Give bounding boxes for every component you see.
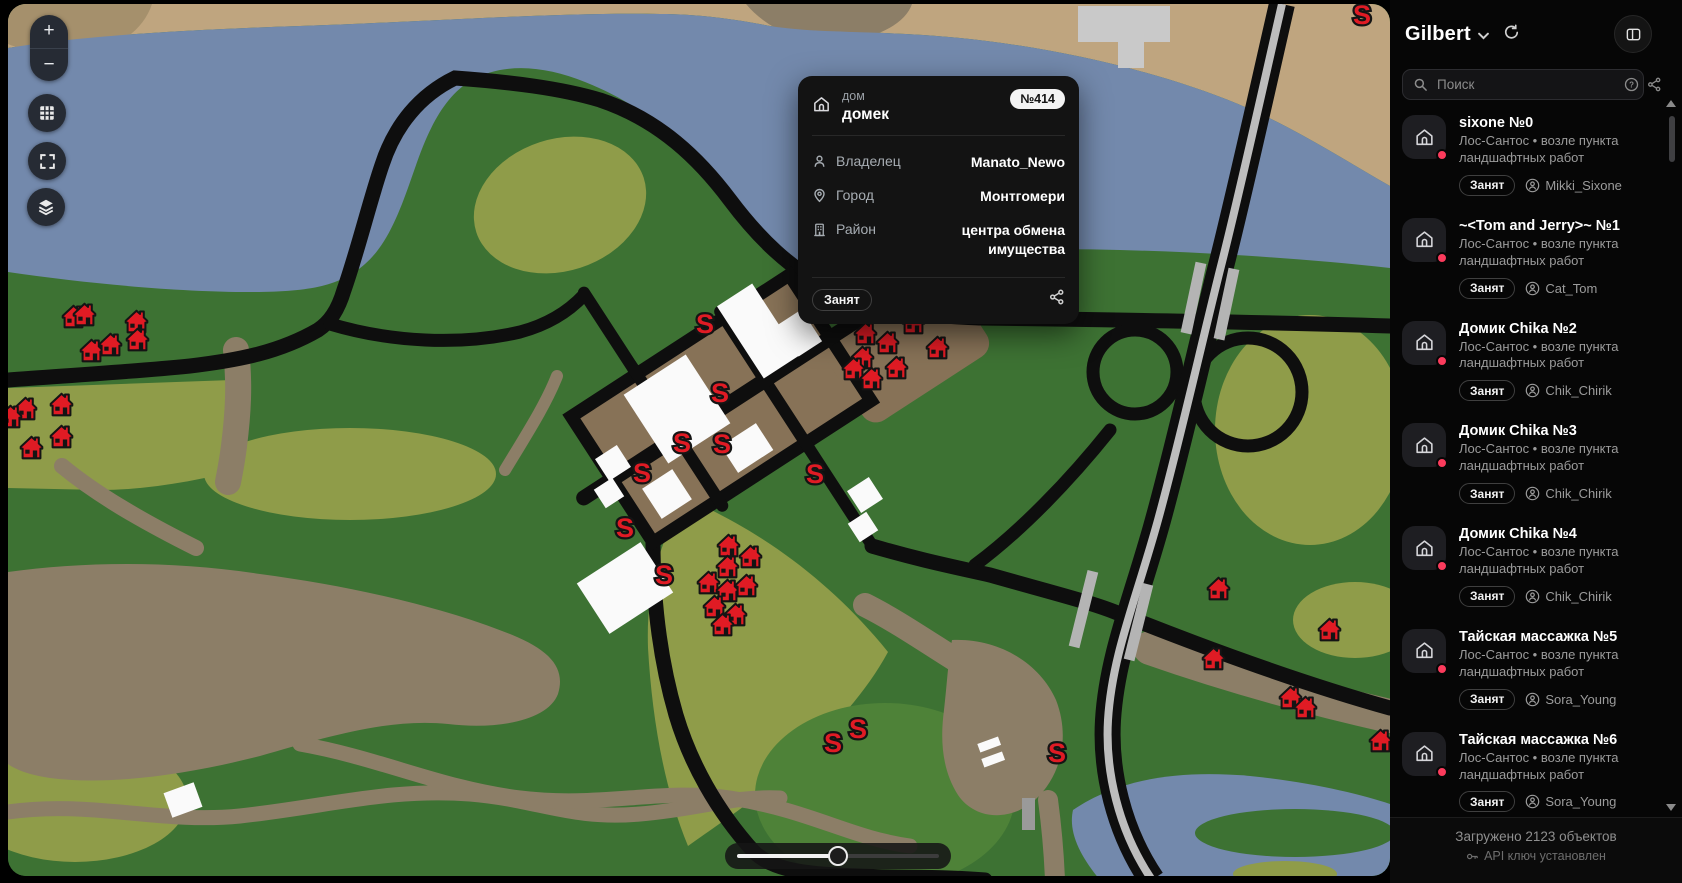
app-window: SSSSSSSSSSSS + − — [0, 0, 1682, 883]
grid-icon — [38, 104, 56, 122]
city-row: Город Монтгомери — [812, 187, 1065, 208]
item-owner[interactable]: Chik_Chirik — [1525, 486, 1611, 501]
person-circle-icon — [1525, 178, 1540, 193]
list-item[interactable]: Домик Chika №4 Лос-Сантос • возле пункта… — [1402, 515, 1660, 618]
scrollbar-thumb[interactable] — [1669, 116, 1675, 162]
layers-button[interactable] — [27, 188, 65, 226]
house-icon — [812, 95, 831, 119]
item-owner[interactable]: Cat_Tom — [1525, 281, 1597, 296]
zoom-control: + − — [30, 15, 68, 81]
list-item[interactable]: sixone №0 Лос-Сантос • возле пункта ланд… — [1402, 104, 1660, 207]
s-marker[interactable]: S — [713, 429, 731, 459]
person-circle-icon — [1525, 794, 1540, 809]
district-row: Район центра обмена имущества — [812, 221, 1065, 260]
owner-row: Владелец Manato_Newo — [812, 153, 1065, 174]
map-canvas[interactable]: SSSSSSSSSSSS — [8, 4, 1390, 876]
s-marker[interactable]: S — [849, 714, 867, 744]
person-circle-icon — [1525, 692, 1540, 707]
item-status-badge: Занят — [1459, 791, 1515, 812]
list-item[interactable]: Домик Chika №3 Лос-Сантос • возле пункта… — [1402, 412, 1660, 515]
api-key-status: API ключ установлен — [1484, 849, 1606, 863]
item-title: ~<Tom and Jerry>~ №1 — [1459, 218, 1647, 234]
item-subtitle: Лос-Сантос • возле пункта ландшафтных ра… — [1459, 339, 1647, 373]
item-status-badge: Занят — [1459, 483, 1515, 504]
chevron-down-icon[interactable] — [1478, 27, 1489, 45]
grid-button[interactable] — [28, 94, 66, 132]
list-item[interactable]: Тайская массажка №6 Лос-Сантос • возле п… — [1402, 721, 1660, 817]
owner-name: Sora_Young — [1545, 692, 1616, 707]
item-owner[interactable]: Sora_Young — [1525, 692, 1616, 707]
item-title: Тайская массажка №6 — [1459, 732, 1647, 748]
item-subtitle: Лос-Сантос • возле пункта ландшафтных ра… — [1459, 441, 1647, 475]
item-subtitle: Лос-Сантос • возле пункта ландшафтных ра… — [1459, 236, 1647, 270]
s-marker[interactable]: S — [711, 378, 729, 408]
house-tile-icon — [1402, 629, 1446, 673]
item-title: Домик Chika №2 — [1459, 321, 1647, 337]
s-marker[interactable]: S — [824, 728, 842, 758]
item-subtitle: Лос-Сантос • возле пункта ландшафтных ра… — [1459, 647, 1647, 681]
slider-track[interactable] — [737, 854, 939, 858]
item-title: Домик Chika №3 — [1459, 423, 1647, 439]
house-tile-icon — [1402, 321, 1446, 365]
fullscreen-icon — [39, 153, 56, 170]
owner-name: Chik_Chirik — [1545, 383, 1611, 398]
s-marker[interactable]: S — [673, 428, 691, 458]
loaded-count: Загружено 2123 объектов — [1390, 829, 1682, 844]
owner-name: Chik_Chirik — [1545, 486, 1611, 501]
s-marker[interactable]: S — [806, 459, 824, 489]
item-status-badge: Занят — [1459, 278, 1515, 299]
scroll-up-arrow[interactable] — [1666, 100, 1676, 107]
person-circle-icon — [1525, 383, 1540, 398]
popup-name: домек — [842, 105, 889, 125]
item-owner[interactable]: Chik_Chirik — [1525, 383, 1611, 398]
slider-fill — [737, 854, 838, 858]
s-marker[interactable]: S — [1048, 738, 1066, 768]
status-dot — [1436, 560, 1448, 572]
item-status-badge: Занят — [1459, 380, 1515, 401]
popup-type-label: дом — [842, 89, 889, 105]
server-title[interactable]: Gilbert — [1405, 23, 1471, 46]
status-dot — [1436, 252, 1448, 264]
status-dot — [1436, 149, 1448, 161]
search-bar[interactable]: ? — [1402, 69, 1644, 100]
status-dot — [1436, 457, 1448, 469]
layers-icon — [37, 198, 55, 216]
scrollbar[interactable] — [1669, 112, 1675, 797]
help-icon[interactable]: ? — [1624, 77, 1639, 92]
map-zoom-slider[interactable] — [725, 843, 951, 869]
key-icon — [1466, 850, 1479, 863]
search-icon — [1413, 77, 1428, 92]
zoom-out-button[interactable]: − — [30, 49, 68, 82]
owner-name: Mikki_Sixone — [1545, 178, 1622, 193]
list-item[interactable]: Домик Chika №2 Лос-Сантос • возле пункта… — [1402, 310, 1660, 413]
owner-name: Cat_Tom — [1545, 281, 1597, 296]
house-tile-icon — [1402, 218, 1446, 262]
house-tile-icon — [1402, 423, 1446, 467]
item-owner[interactable]: Chik_Chirik — [1525, 589, 1611, 604]
person-icon — [812, 154, 827, 174]
item-title: Тайская массажка №5 — [1459, 629, 1647, 645]
sidebar-footer: Загружено 2123 объектов API ключ установ… — [1390, 817, 1682, 883]
share-icon[interactable] — [1049, 289, 1065, 310]
house-tile-icon — [1402, 115, 1446, 159]
item-owner[interactable]: Sora_Young — [1525, 794, 1616, 809]
s-marker[interactable]: S — [696, 309, 714, 339]
property-list: sixone №0 Лос-Сантос • возле пункта ланд… — [1402, 104, 1660, 817]
list-item[interactable]: ~<Tom and Jerry>~ №1 Лос-Сантос • возле … — [1402, 207, 1660, 310]
zoom-in-button[interactable]: + — [30, 15, 68, 48]
s-marker[interactable]: S — [633, 458, 651, 488]
s-marker[interactable]: S — [1353, 4, 1371, 30]
status-dot — [1436, 766, 1448, 778]
item-subtitle: Лос-Сантос • возле пункта ландшафтных ра… — [1459, 133, 1647, 167]
owner-name: Chik_Chirik — [1545, 589, 1611, 604]
item-title: sixone №0 — [1459, 115, 1647, 131]
scroll-down-arrow[interactable] — [1666, 804, 1676, 811]
house-tile-icon — [1402, 526, 1446, 570]
slider-thumb[interactable] — [828, 846, 848, 866]
refresh-icon[interactable] — [1503, 24, 1520, 46]
status-badge: Занят — [812, 289, 872, 311]
list-item[interactable]: Тайская массажка №5 Лос-Сантос • возле п… — [1402, 618, 1660, 721]
item-owner[interactable]: Mikki_Sixone — [1525, 178, 1622, 193]
status-dot — [1436, 355, 1448, 367]
panel-toggle-button[interactable] — [1614, 15, 1652, 53]
property-popup: дом домек №414 Владелец Manato_Newo — [798, 76, 1079, 324]
item-title: Домик Chika №4 — [1459, 526, 1647, 542]
share-icon[interactable] — [1647, 77, 1662, 92]
item-subtitle: Лос-Сантос • возле пункта ландшафтных ра… — [1459, 544, 1647, 578]
person-circle-icon — [1525, 486, 1540, 501]
house-tile-icon — [1402, 732, 1446, 776]
person-circle-icon — [1525, 281, 1540, 296]
map-svg[interactable]: SSSSSSSSSSSS — [8, 4, 1390, 876]
fullscreen-button[interactable] — [28, 142, 66, 180]
owner-name: Sora_Young — [1545, 794, 1616, 809]
item-status-badge: Занят — [1459, 175, 1515, 196]
search-input[interactable] — [1435, 76, 1616, 93]
status-dot — [1436, 663, 1448, 675]
sidebar: Gilbert ? — [1390, 0, 1682, 883]
pin-icon — [812, 188, 827, 208]
item-status-badge: Занят — [1459, 586, 1515, 607]
number-badge: №414 — [1010, 89, 1065, 109]
person-circle-icon — [1525, 589, 1540, 604]
building-icon — [812, 222, 827, 242]
item-subtitle: Лос-Сантос • возле пункта ландшафтных ра… — [1459, 750, 1647, 784]
item-status-badge: Занят — [1459, 689, 1515, 710]
svg-text:?: ? — [1629, 80, 1634, 89]
panel-icon — [1625, 26, 1642, 43]
s-marker[interactable]: S — [616, 513, 634, 543]
s-marker[interactable]: S — [655, 560, 673, 590]
